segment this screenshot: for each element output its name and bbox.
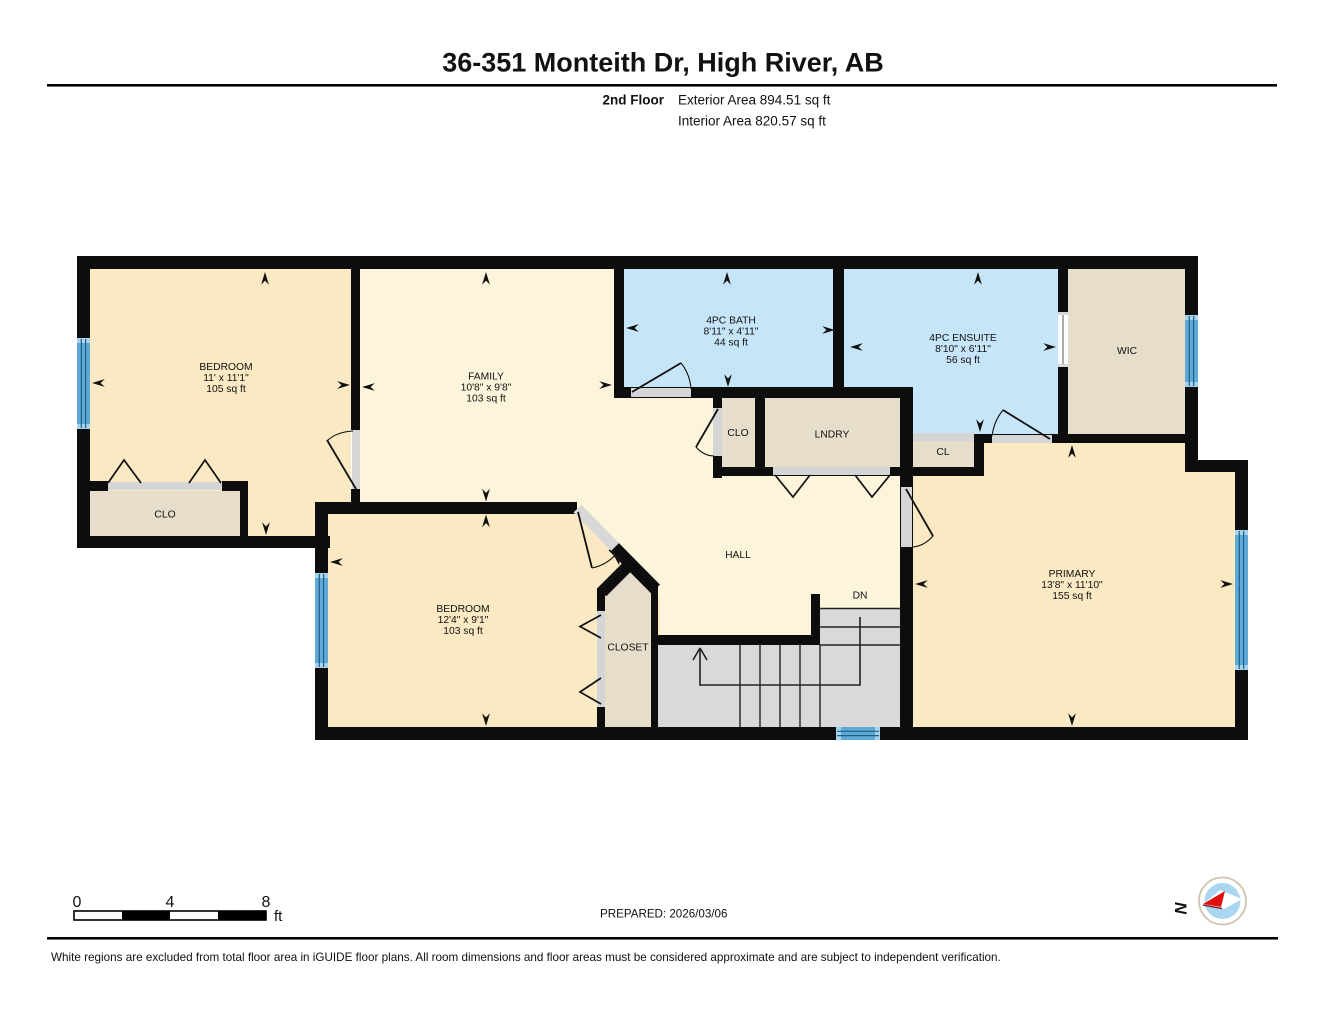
- svg-text:36-351 Monteith Dr, High River: 36-351 Monteith Dr, High River, AB: [442, 48, 884, 78]
- svg-text:10'8" x 9'8": 10'8" x 9'8": [461, 383, 512, 394]
- svg-text:11' x 11'1": 11' x 11'1": [203, 373, 249, 384]
- svg-text:White regions are excluded fro: White regions are excluded from total fl…: [51, 951, 1001, 964]
- svg-text:CL: CL: [936, 447, 949, 458]
- svg-text:103 sq ft: 103 sq ft: [466, 394, 506, 405]
- svg-text:12'4" x 9'1": 12'4" x 9'1": [438, 615, 489, 626]
- svg-text:13'8" x 11'10": 13'8" x 11'10": [1041, 580, 1103, 591]
- svg-text:HALL: HALL: [725, 550, 751, 561]
- svg-text:155 sq ft: 155 sq ft: [1052, 591, 1092, 602]
- svg-text:Interior Area 820.57 sq ft: Interior Area 820.57 sq ft: [678, 114, 826, 129]
- svg-text:8'10" x 6'11": 8'10" x 6'11": [935, 344, 991, 355]
- svg-text:BEDROOM: BEDROOM: [436, 604, 489, 615]
- svg-text:4PC ENSUITE: 4PC ENSUITE: [929, 333, 997, 344]
- svg-text:44 sq ft: 44 sq ft: [714, 338, 748, 349]
- svg-text:ft: ft: [274, 908, 283, 925]
- svg-text:PREPARED: 2026/03/06: PREPARED: 2026/03/06: [600, 908, 727, 921]
- svg-text:8: 8: [262, 894, 271, 911]
- svg-text:FAMILY: FAMILY: [468, 372, 504, 383]
- svg-text:WIC: WIC: [1117, 346, 1138, 357]
- svg-text:PRIMARY: PRIMARY: [1049, 569, 1096, 580]
- svg-text:Exterior Area 894.51 sq ft: Exterior Area 894.51 sq ft: [678, 93, 831, 108]
- svg-text:DN: DN: [853, 591, 868, 602]
- svg-text:LNDRY: LNDRY: [815, 430, 850, 441]
- svg-text:N: N: [1173, 902, 1191, 915]
- svg-text:8'11" x 4'11": 8'11" x 4'11": [704, 327, 759, 338]
- svg-text:4PC BATH: 4PC BATH: [706, 316, 756, 327]
- svg-text:CLOSET: CLOSET: [607, 643, 649, 654]
- svg-text:56 sq ft: 56 sq ft: [946, 355, 980, 366]
- svg-text:2nd Floor: 2nd Floor: [603, 93, 665, 108]
- svg-text:0: 0: [73, 894, 82, 911]
- svg-text:BEDROOM: BEDROOM: [199, 362, 252, 373]
- svg-text:103 sq ft: 103 sq ft: [443, 626, 483, 637]
- svg-text:105 sq ft: 105 sq ft: [206, 384, 246, 395]
- svg-text:4: 4: [166, 894, 175, 911]
- svg-text:CLO: CLO: [154, 510, 175, 521]
- svg-text:CLO: CLO: [727, 428, 748, 439]
